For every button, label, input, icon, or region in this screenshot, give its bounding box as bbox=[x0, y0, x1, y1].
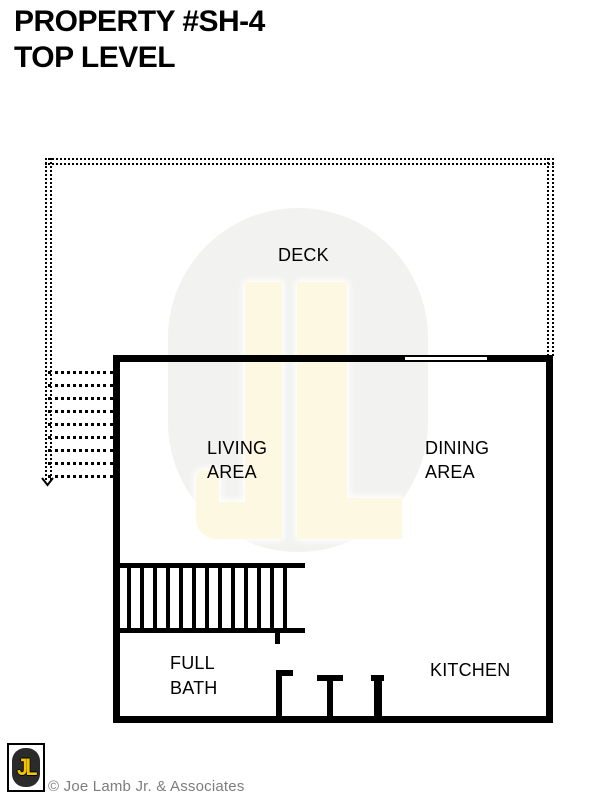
stairs-down-arrow-icon bbox=[41, 477, 54, 487]
dining-area-label: DININGAREA bbox=[425, 436, 489, 484]
bath-partition-wall bbox=[276, 670, 282, 716]
exterior-stair-step bbox=[48, 384, 113, 387]
copyright-text: © Joe Lamb Jr. & Associates bbox=[48, 778, 245, 795]
interior-stair-tread bbox=[166, 568, 170, 628]
interior-stair-tread bbox=[257, 568, 261, 628]
company-logo-jl-text: JL bbox=[17, 756, 35, 780]
interior-stairs-treads bbox=[127, 568, 292, 628]
exterior-stair-step bbox=[48, 462, 113, 465]
hall-partition-wall bbox=[327, 681, 333, 716]
interior-stair-tread bbox=[270, 568, 274, 628]
full-bath-label: FULLBATH bbox=[170, 651, 217, 701]
interior-stair-tread bbox=[231, 568, 235, 628]
sliding-door-symbol bbox=[405, 355, 487, 362]
exterior-stair-step bbox=[48, 410, 113, 413]
company-logo-oval: JL bbox=[12, 748, 40, 787]
living-area-label: LIVINGAREA bbox=[207, 436, 267, 484]
bath-door-jamb bbox=[276, 670, 293, 676]
interior-stair-tread bbox=[244, 568, 248, 628]
floor-plan-page: PROPERTY #SH-4TOP LEVEL DECK LIVINGAREA … bbox=[0, 0, 600, 800]
interior-stair-tread bbox=[205, 568, 209, 628]
deck-label: DECK bbox=[278, 243, 329, 267]
exterior-stairs bbox=[48, 371, 113, 483]
interior-stair-tread bbox=[140, 568, 144, 628]
kitchen-partition-wall bbox=[374, 681, 382, 716]
exterior-stair-step bbox=[48, 449, 113, 452]
exterior-stair-step bbox=[48, 397, 113, 400]
interior-stair-tread bbox=[283, 568, 287, 628]
interior-stair-tread bbox=[179, 568, 183, 628]
exterior-stair-step bbox=[48, 436, 113, 439]
kitchen-label: KITCHEN bbox=[430, 658, 510, 682]
company-logo: JL bbox=[7, 743, 45, 792]
page-title-line2: TOP LEVEL bbox=[14, 41, 175, 74]
interior-stair-tread bbox=[127, 568, 131, 628]
stair-door-jamb bbox=[275, 633, 280, 644]
page-title-line1: PROPERTY #SH-4 bbox=[14, 5, 265, 38]
deck-outline-top bbox=[45, 158, 554, 165]
exterior-stair-step bbox=[48, 475, 113, 478]
page-title: PROPERTY #SH-4TOP LEVEL bbox=[14, 4, 265, 76]
interior-stair-tread bbox=[153, 568, 157, 628]
interior-stair-tread bbox=[218, 568, 222, 628]
deck-outline-right bbox=[547, 158, 554, 356]
exterior-stair-step bbox=[48, 371, 113, 374]
exterior-stair-step bbox=[48, 423, 113, 426]
interior-stair-tread bbox=[192, 568, 196, 628]
